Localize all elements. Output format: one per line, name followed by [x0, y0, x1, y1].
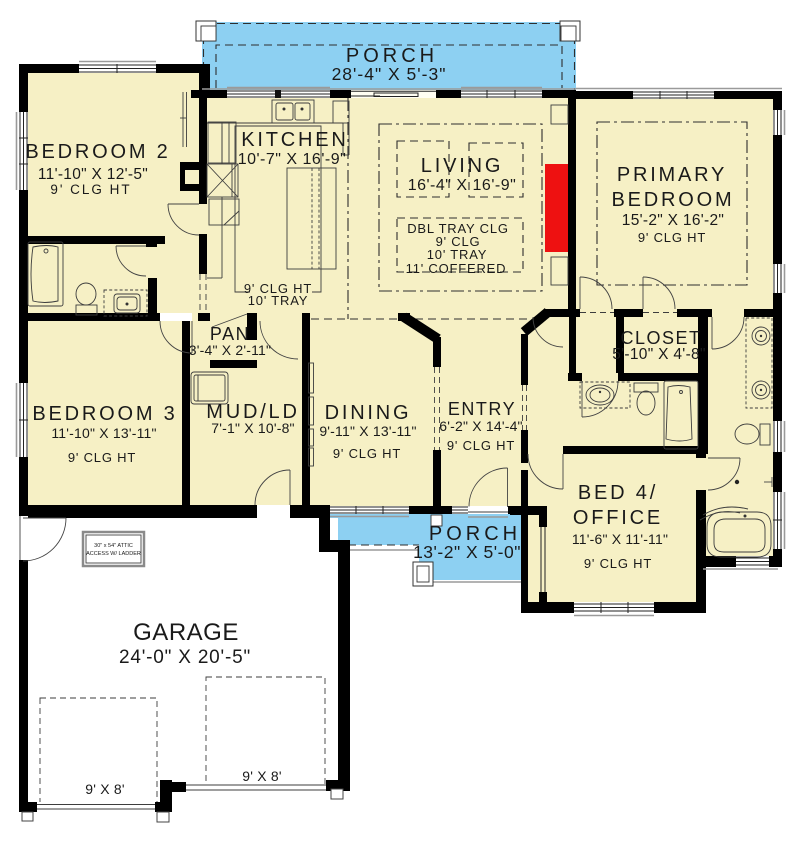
svg-text:BEDROOM: BEDROOM	[612, 189, 735, 211]
svg-text:CLOSET: CLOSET	[620, 328, 701, 348]
svg-text:9' CLG HT: 9' CLG HT	[333, 446, 401, 461]
svg-text:OFFICE: OFFICE	[573, 507, 663, 529]
svg-text:9' CLG HT: 9' CLG HT	[50, 182, 131, 197]
svg-text:LIVING: LIVING	[421, 155, 503, 177]
svg-text:DINING: DINING	[325, 402, 412, 424]
svg-text:30" x 54" ATTIC: 30" x 54" ATTIC	[94, 543, 133, 549]
svg-text:9'-11" X 13'-11": 9'-11" X 13'-11"	[319, 423, 416, 439]
svg-text:11'-10" X 12'-5": 11'-10" X 12'-5"	[38, 166, 148, 183]
svg-text:9' CLG HT: 9' CLG HT	[68, 450, 136, 465]
svg-text:24'-0" X 20'-5": 24'-0" X 20'-5"	[119, 647, 251, 668]
svg-text:11'-10" X 13'-11": 11'-10" X 13'-11"	[51, 425, 156, 441]
svg-text:15'-2" X 16'-2": 15'-2" X 16'-2"	[622, 212, 724, 229]
svg-text:PAN: PAN	[210, 324, 250, 344]
svg-text:10'-7" X 16'-9": 10'-7" X 16'-9"	[238, 151, 347, 168]
svg-text:10' TRAY: 10' TRAY	[248, 293, 308, 308]
svg-text:BEDROOM 3: BEDROOM 3	[32, 403, 177, 425]
svg-text:ENTRY: ENTRY	[448, 399, 516, 419]
svg-text:9' X 8': 9' X 8'	[242, 768, 281, 784]
svg-text:6'-2" X 14'-4": 6'-2" X 14'-4"	[439, 418, 522, 434]
svg-text:16'-4" X 16'-9": 16'-4" X 16'-9"	[408, 177, 517, 194]
svg-text:11' COFFERED: 11' COFFERED	[406, 261, 507, 276]
svg-text:11'-6" X 11'-11": 11'-6" X 11'-11"	[572, 531, 668, 547]
svg-text:13'-2" X 5'-0": 13'-2" X 5'-0"	[413, 542, 521, 562]
svg-text:ACCESS W/ LADDER: ACCESS W/ LADDER	[86, 551, 141, 557]
svg-text:3'-4" X 2'-11": 3'-4" X 2'-11"	[189, 342, 271, 358]
svg-text:9' CLG HT: 9' CLG HT	[584, 556, 652, 571]
svg-text:PRIMARY: PRIMARY	[617, 164, 727, 186]
svg-text:GARAGE: GARAGE	[133, 619, 239, 646]
svg-text:7'-1" X 10'-8": 7'-1" X 10'-8"	[211, 420, 294, 436]
svg-text:BEDROOM 2: BEDROOM 2	[25, 141, 170, 163]
svg-text:9' CLG HT: 9' CLG HT	[447, 438, 515, 453]
svg-text:9' CLG HT: 9' CLG HT	[638, 230, 706, 245]
svg-text:KITCHEN: KITCHEN	[241, 129, 348, 151]
svg-text:9' X 8': 9' X 8'	[85, 781, 124, 797]
svg-text:10' TRAY: 10' TRAY	[427, 247, 487, 262]
svg-text:5'-10" X 4'-8": 5'-10" X 4'-8"	[612, 346, 706, 363]
svg-text:28'-4" X 5'-3": 28'-4" X 5'-3"	[332, 64, 447, 84]
svg-text:BED 4/: BED 4/	[578, 482, 658, 504]
